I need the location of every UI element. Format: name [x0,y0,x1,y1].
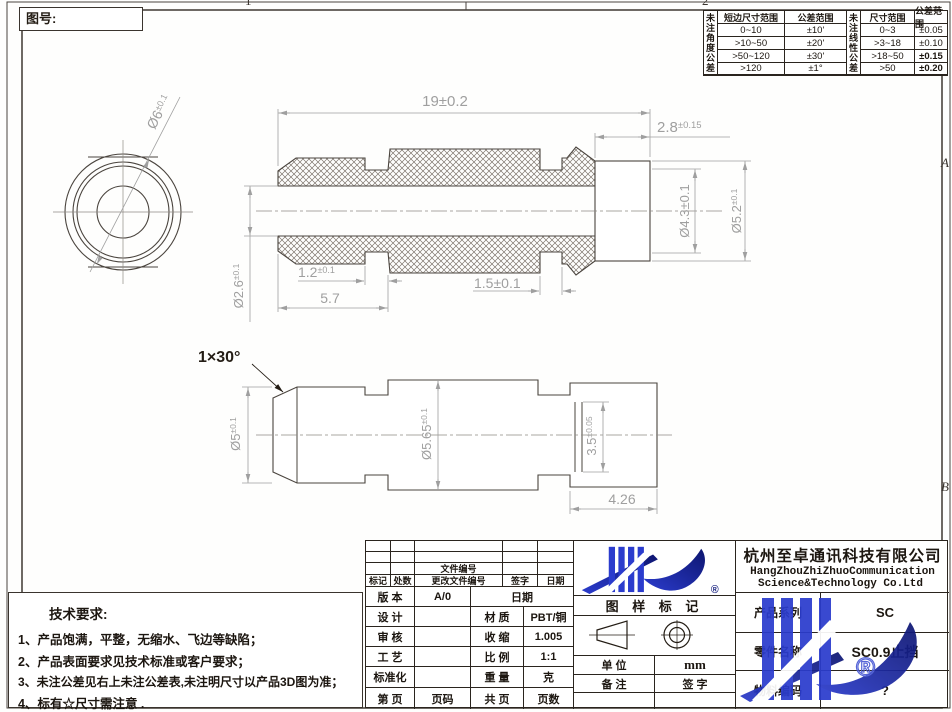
rev-count-label: 处数 [391,575,415,587]
check-value [415,627,471,647]
material-label: 材 质 [471,607,524,627]
angle-range-1: 0~10 [718,24,785,37]
dim-cap-length: 2.8±0.15 [657,119,702,136]
dim-nose-length: 5.7 [320,290,340,306]
side-view: 1×30° Ø5±0.1 Ø5.65±0.1 3.5±0.05 4.26 [198,349,674,514]
total-pages-value: 页数 [524,688,574,709]
angle-col1-header: 短边尺寸范围 [718,11,785,24]
unit-value: mm [655,656,736,675]
zone-marker-1: 1 [245,0,252,9]
center-lines [53,140,193,284]
dim-tail-length: 4.26 [608,491,635,507]
linear-col2-header: 公差范围 [915,11,947,24]
stamp-label: 图 样 标 记 [574,596,736,616]
dimension-texts: 19±0.2 2.8±0.15 Ø4.3±0.1 Ø5.2±0.1 Ø2.6±0… [231,93,744,308]
zone-marker-a: A [941,155,949,171]
scale-label: 比 例 [471,647,524,667]
rev-cell [366,541,391,552]
date-label: 日期 [471,587,574,607]
shrink-value: 1.005 [524,627,574,647]
linear-col1-header: 尺寸范围 [861,11,915,24]
company-logo-watermark: ® [738,590,946,708]
end-view: Ø6±0.1 [53,92,193,284]
tech-req-item: 3、未注公差见右上未注公差表,未注明尺寸以产品3D图为准； [18,673,343,690]
dim-total-length: 19±0.2 [422,93,468,110]
rev-cell [366,552,391,563]
angle-range-4: >120 [718,63,785,75]
rev-cell [366,563,391,575]
page-label: 第 页 [366,688,415,709]
material-value: PBT/铜 [524,607,574,627]
rev-cell [391,552,415,563]
drawing-number-box: 图号: [19,7,143,31]
tech-req-item: 1、产品饱满，平整，无缩水、飞边等缺陷； [18,629,262,648]
remark-value [574,693,655,709]
sign-label: 签 字 [655,675,736,693]
company-name-cn: 杭州至卓通讯科技有限公司 [743,544,941,566]
linear-tol-3: ±0.15 [915,50,947,63]
linear-tol-2: ±0.10 [915,37,947,50]
rev-cell [503,563,538,575]
check-label: 审 核 [366,627,415,647]
projection-symbols-cell [574,616,736,656]
tolerance-table: 未注角度公差 短边尺寸范围 公差范围 0~10 ±10' >10~50 ±20'… [703,10,948,76]
angle-tol-side-header: 未注角度公差 [704,11,718,75]
dim-nose-od: Ø5±0.1 [228,417,243,451]
technical-requirements: 技术要求: 1、产品饱满，平整，无缩水、飞边等缺陷； 2、产品表面要求见技术标准… [8,592,363,708]
scale-value: 1:1 [524,647,574,667]
dim-groove1: 1.2±0.1 [298,264,335,280]
dim-groove2: 1.5±0.1 [474,275,521,291]
zone-marker-b: B [941,479,949,495]
dim-chamfer: 1×30° [198,349,240,366]
rev-cell [391,541,415,552]
rev-cell [538,552,574,563]
version-label: 版 本 [366,587,415,607]
standardize-value [415,667,471,688]
chamfer-leader [252,364,283,392]
tech-req-item: 4、标有☆尺寸需注意 . [18,693,144,712]
weight-label: 重 量 [471,667,524,688]
linear-range-4: >50 [861,63,915,75]
linear-range-1: 0~3 [861,24,915,37]
rev-docno-label: 更改文件编号 [415,575,503,587]
weight-value: 克 [524,667,574,688]
registered-outline-mark: ® [856,652,875,682]
shrink-label: 收 缩 [471,627,524,647]
angle-tol-2: ±20' [785,37,847,50]
tech-req-item: 2、产品表面要求见技术标准或客户要求； [18,651,250,670]
angle-tol-4: ±1° [785,63,847,75]
first-angle-projection-symbol [575,617,735,655]
dim-end-od: Ø6±0.1 [143,92,174,131]
linear-range-3: >18~50 [861,50,915,63]
design-value [415,607,471,627]
process-value [415,647,471,667]
unit-label: 单 位 [574,656,655,675]
rev-sign-label: 签字 [503,575,538,587]
rev-date-label: 日期 [538,575,574,587]
rev-cell [538,541,574,552]
dim-cap-od: Ø5.2±0.1 [729,188,744,233]
drawing-number-label: 图号: [26,11,56,26]
standardize-label: 标准化 [366,667,415,688]
company-logo-cell: ® [574,541,736,596]
sign-value [655,693,736,709]
rev-cell [415,541,503,552]
rev-cell [415,552,503,563]
rev-cell [391,563,415,575]
angle-tol-1: ±10' [785,24,847,37]
process-label: 工 艺 [366,647,415,667]
angle-range-3: >50~120 [718,50,785,63]
rev-cell [503,552,538,563]
rev-cell [503,541,538,552]
linear-tol-side-header: 未注线性公差 [847,11,861,75]
section-view: 19±0.2 2.8±0.15 Ø4.3±0.1 Ø5.2±0.1 Ø2.6±0… [231,93,751,322]
company-logo: ® [577,542,732,594]
linear-tol-4: ±0.20 [915,63,947,75]
version-value: A/0 [415,587,471,607]
rev-cell [538,563,574,575]
drawing-sheet: Ø6±0.1 [0,0,952,712]
rev-mark-label: 标记 [366,575,391,587]
page-no: 页码 [415,688,471,709]
angle-col2-header: 公差范围 [785,11,847,24]
linear-tol-1: ±0.05 [915,24,947,37]
doc-no-label: 文件编号 [415,563,503,575]
linear-range-2: >3~18 [861,37,915,50]
upper-wall-hatched [278,147,595,186]
dim-cap-bore: Ø4.3±0.1 [677,184,692,237]
tech-req-title: 技术要求: [49,603,108,623]
zone-marker-2: 2 [702,0,709,9]
angle-tol-3: ±30' [785,50,847,63]
angle-range-2: >10~50 [718,37,785,50]
registered-mark: ® [711,584,719,594]
company-info: 杭州至卓通讯科技有限公司 HangZhouZhiZhuoCommunicatio… [736,541,949,593]
remark-label: 备 注 [574,675,655,693]
company-name-en2: Science&Technology Co.Ltd [758,578,927,590]
total-pages-label: 共 页 [471,688,524,709]
design-label: 设 计 [366,607,415,627]
company-name-en1: HangZhouZhiZhuoCommunication [750,566,935,578]
dim-bore: Ø2.6±0.1 [231,263,246,308]
